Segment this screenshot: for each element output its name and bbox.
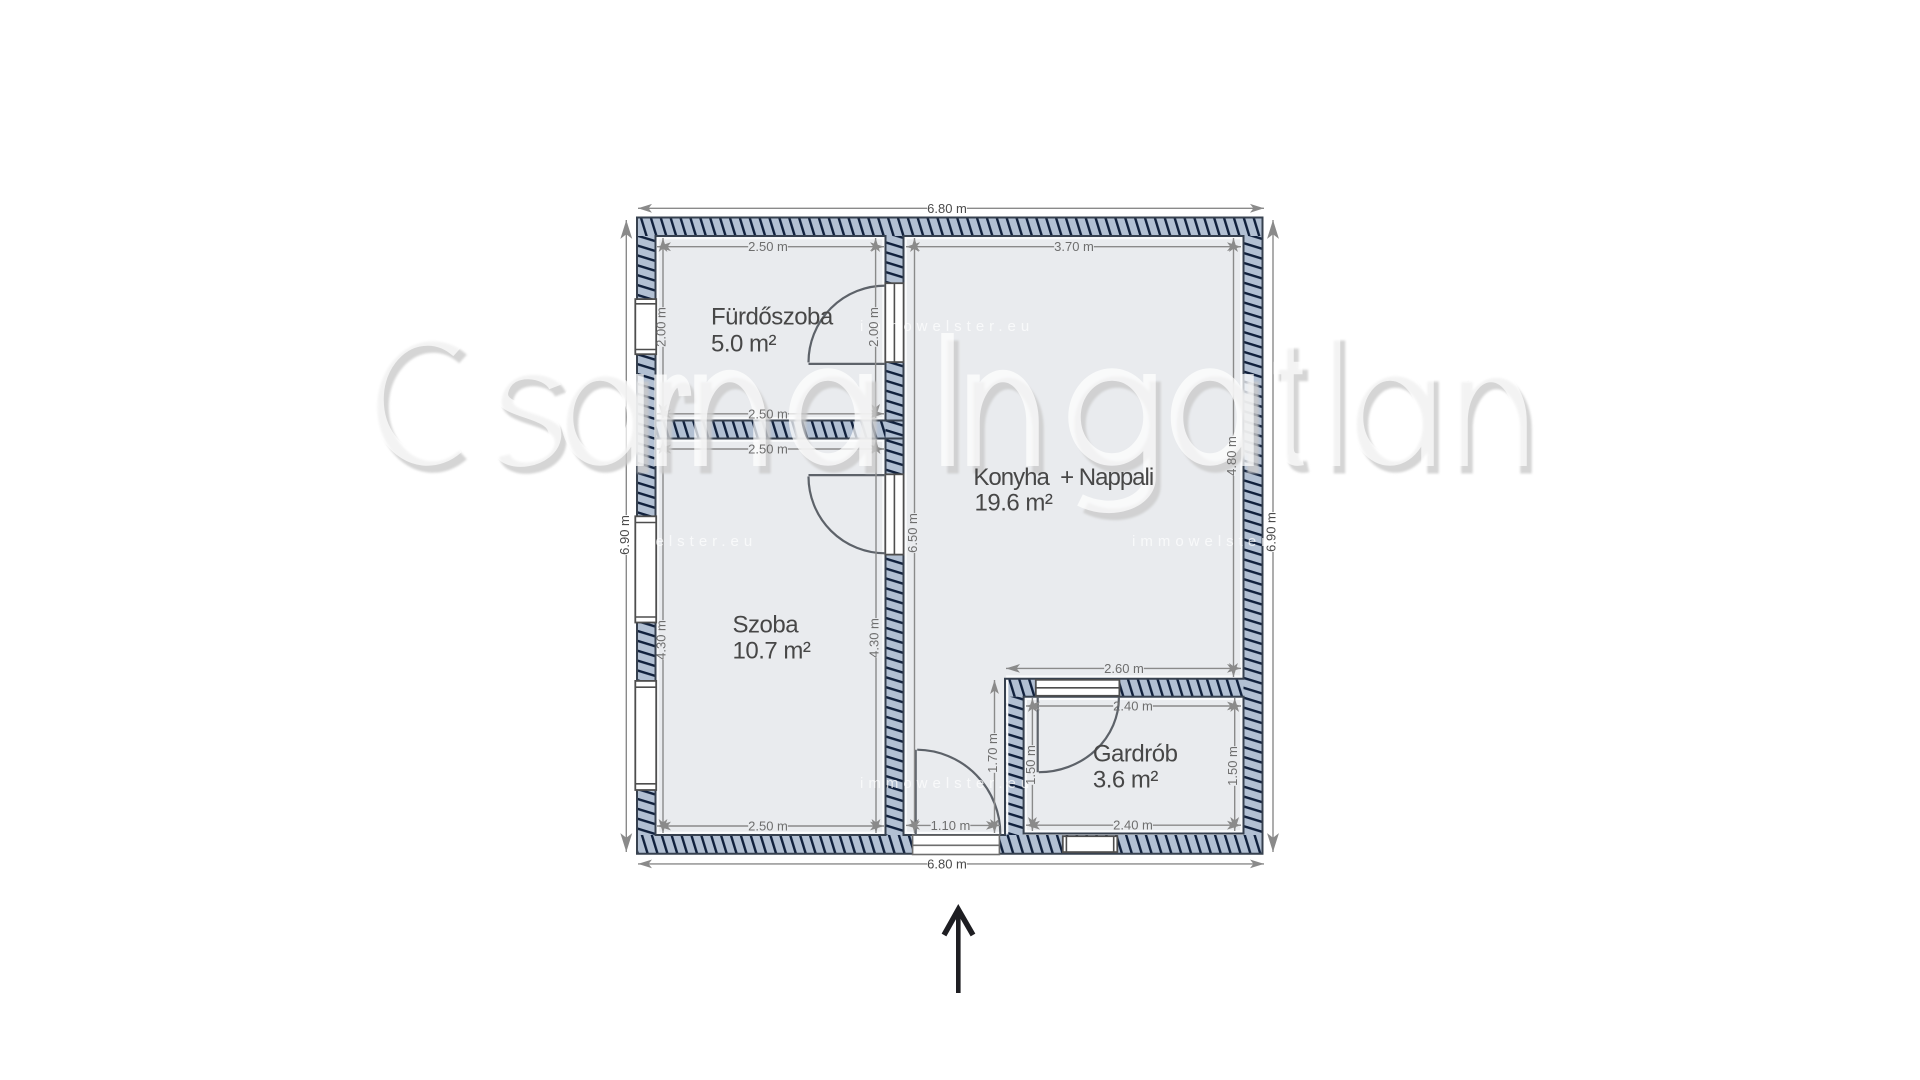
svg-text:Gardrób: Gardrób — [1093, 740, 1178, 767]
svg-text:Konyha + Nappali: Konyha + Nappali — [973, 464, 1153, 491]
svg-text:6.90 m: 6.90 m — [617, 515, 632, 555]
svg-text:Szoba: Szoba — [733, 612, 800, 639]
svg-text:6.80 m: 6.80 m — [927, 201, 967, 216]
svg-text:2.00 m: 2.00 m — [866, 307, 881, 347]
svg-text:2.50 m: 2.50 m — [748, 239, 788, 254]
svg-text:3.70 m: 3.70 m — [1054, 239, 1094, 254]
svg-text:1.10 m: 1.10 m — [931, 818, 971, 833]
svg-text:immowelster.eu: immowelster.eu — [583, 533, 757, 550]
svg-text:2.40 m: 2.40 m — [1113, 818, 1153, 833]
svg-text:1.50 m: 1.50 m — [1225, 746, 1240, 786]
svg-text:19.6 m²: 19.6 m² — [975, 490, 1053, 517]
svg-text:4.30 m: 4.30 m — [867, 618, 882, 658]
svg-text:2.50 m: 2.50 m — [748, 442, 788, 457]
svg-text:6.90 m: 6.90 m — [1264, 512, 1279, 552]
svg-text:6.50 m: 6.50 m — [905, 513, 920, 553]
svg-text:2.40 m: 2.40 m — [1113, 699, 1153, 714]
svg-text:2.60 m: 2.60 m — [1104, 661, 1144, 676]
svg-text:4.30 m: 4.30 m — [654, 620, 669, 660]
svg-text:2.50 m: 2.50 m — [748, 406, 788, 421]
svg-text:4.80 m: 4.80 m — [1224, 436, 1239, 476]
svg-text:6.80 m: 6.80 m — [927, 856, 967, 871]
svg-text:1.70 m: 1.70 m — [985, 733, 1000, 773]
svg-text:2.50 m: 2.50 m — [748, 819, 788, 834]
svg-text:immowelster.eu: immowelster.eu — [1132, 533, 1306, 550]
svg-text:Fürdőszoba: Fürdőszoba — [711, 304, 834, 331]
svg-text:5.0 m²: 5.0 m² — [711, 331, 777, 358]
svg-text:immowelster.eu: immowelster.eu — [860, 775, 1034, 792]
svg-text:10.7 m²: 10.7 m² — [733, 638, 811, 665]
svg-text:immowelster.eu: immowelster.eu — [860, 318, 1034, 335]
svg-text:1.50 m: 1.50 m — [1023, 745, 1038, 785]
svg-text:2.00 m: 2.00 m — [654, 307, 669, 347]
svg-text:3.6 m²: 3.6 m² — [1093, 767, 1159, 794]
